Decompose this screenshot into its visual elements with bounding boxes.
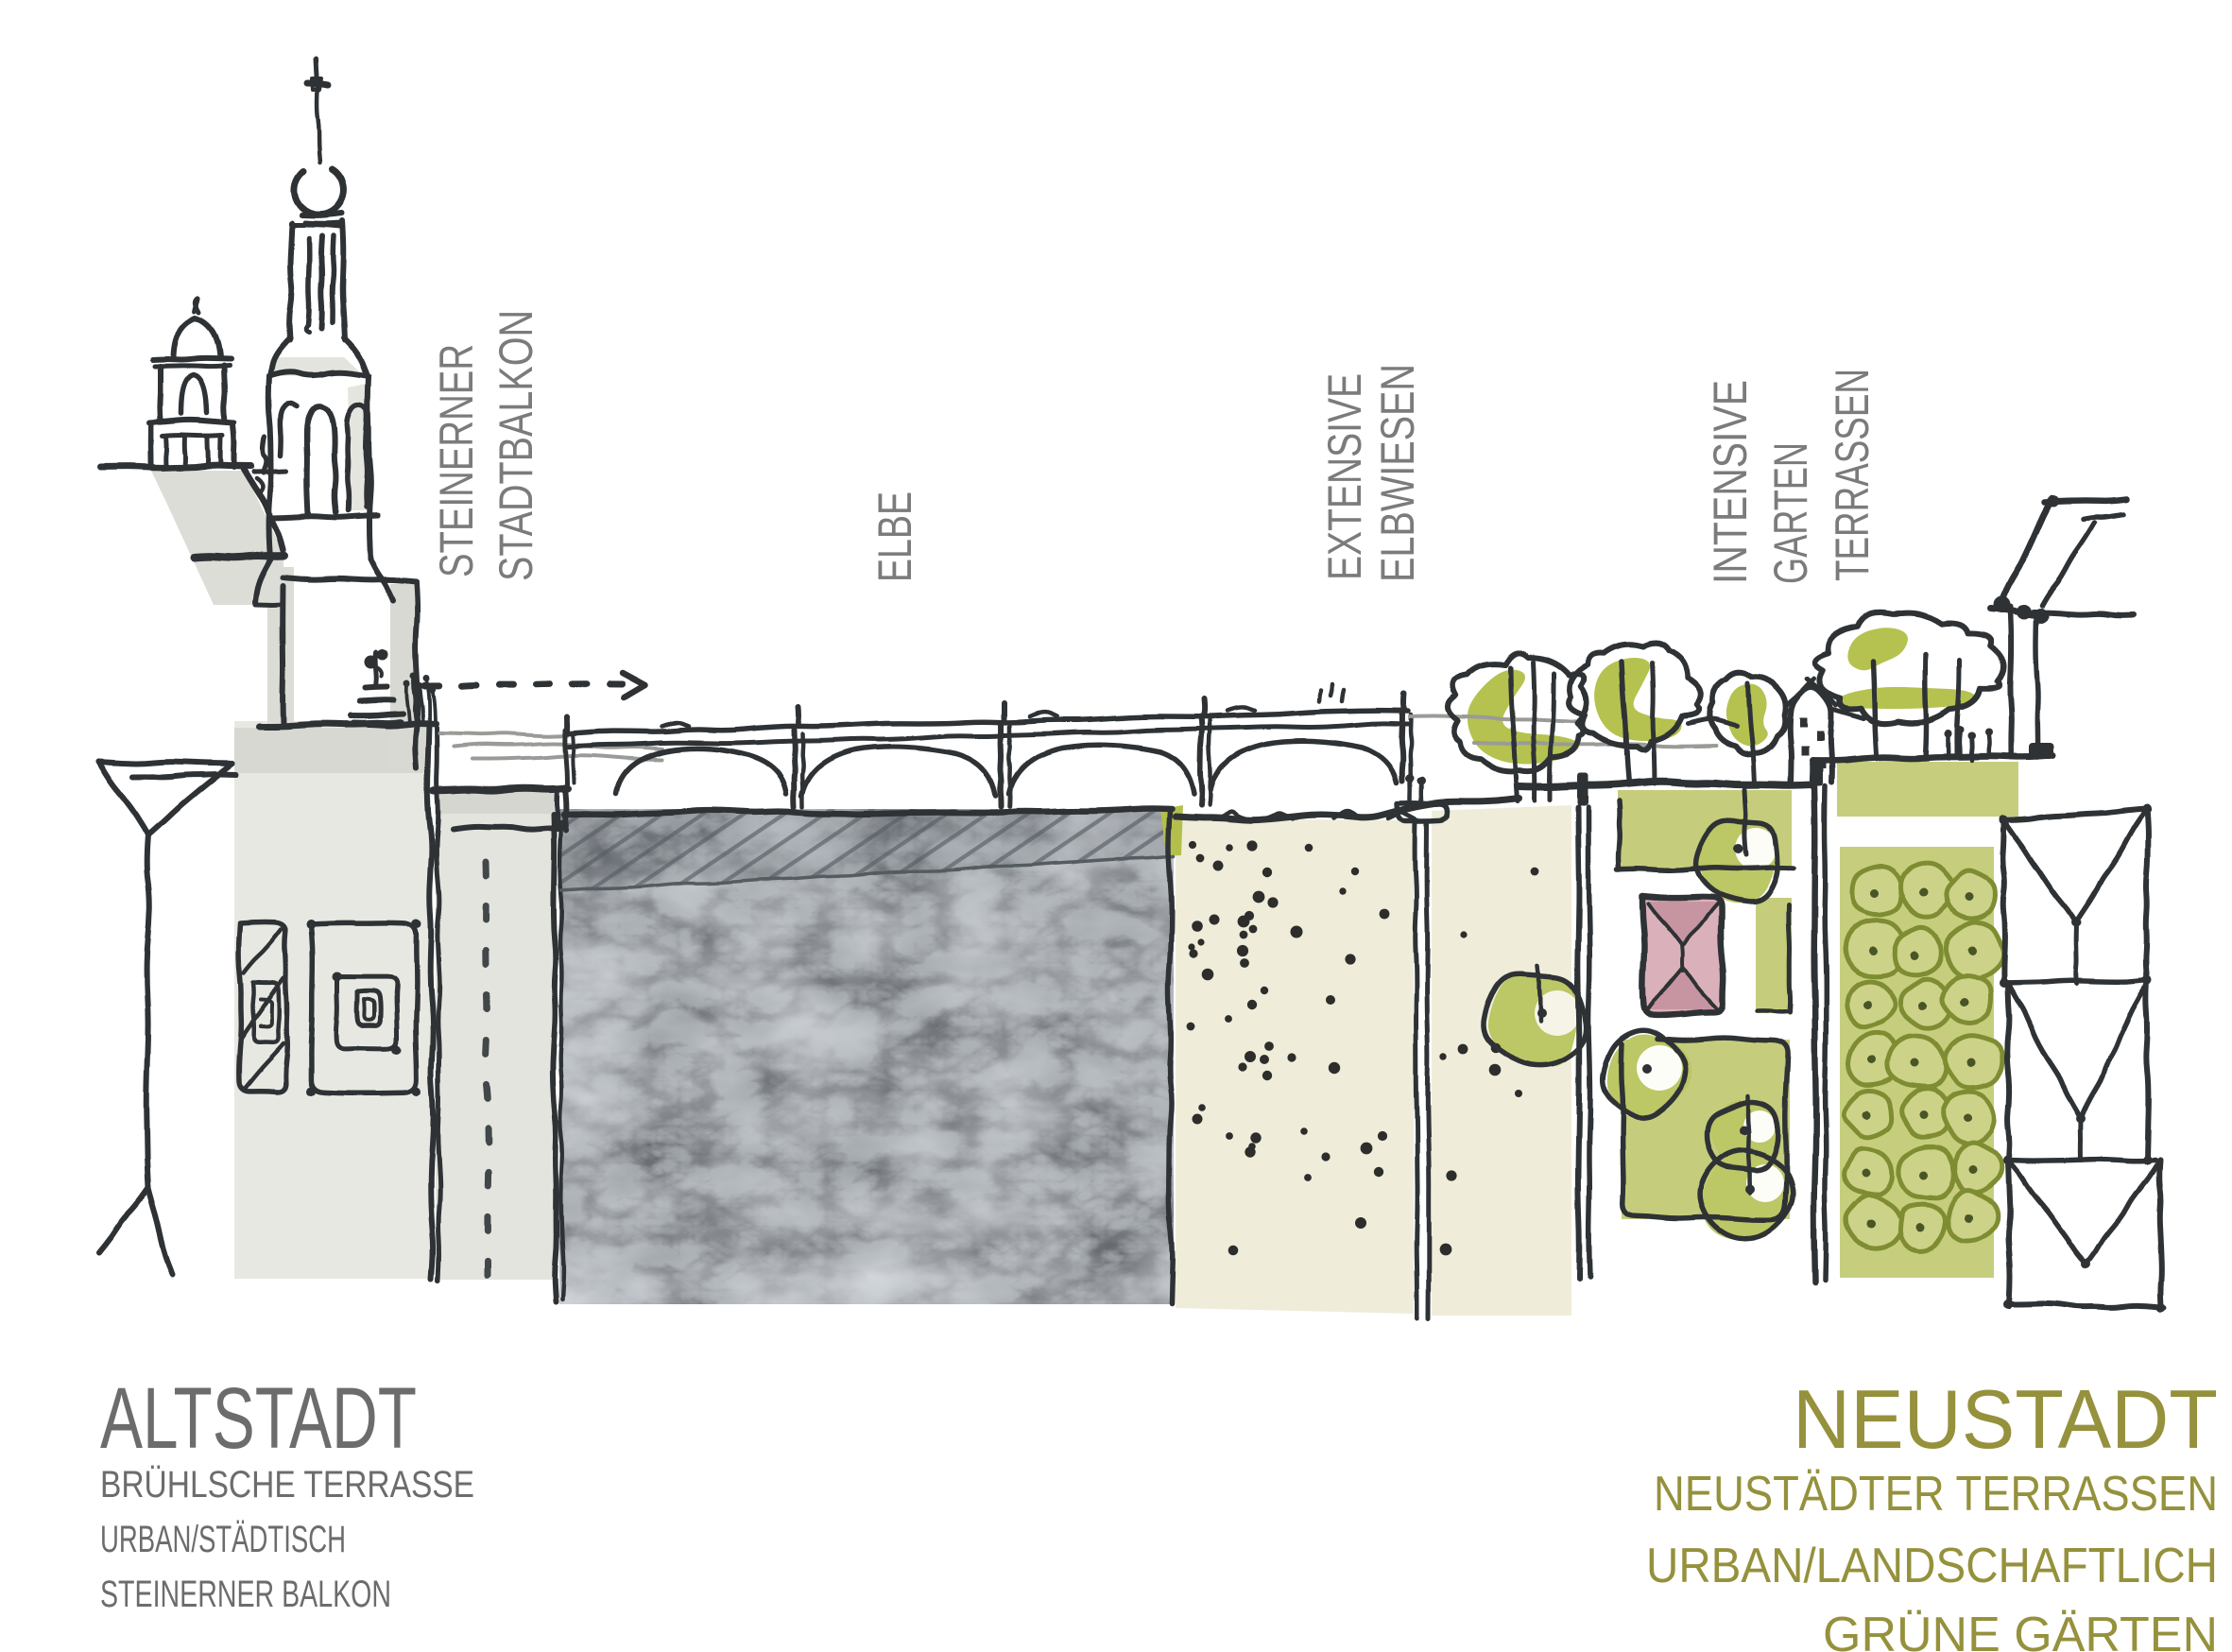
svg-text:NEUSTÄDTER TERRASSEN: NEUSTÄDTER TERRASSEN	[1654, 1467, 2218, 1522]
svg-text:STEINERNER: STEINERNER	[430, 344, 483, 577]
svg-text:ELBE: ELBE	[868, 491, 921, 582]
svg-text:STADTBALKON: STADTBALKON	[489, 310, 542, 581]
svg-text:BRÜHLSCHE TERRASSE: BRÜHLSCHE TERRASSE	[100, 1464, 474, 1506]
svg-text:ALTSTADT: ALTSTADT	[100, 1370, 417, 1467]
svg-text:STEINERNER BALKON: STEINERNER BALKON	[100, 1574, 391, 1615]
svg-text:URBAN/LANDSCHAFTLICH: URBAN/LANDSCHAFTLICH	[1646, 1539, 2218, 1593]
svg-text:NEUSTADT: NEUSTADT	[1793, 1372, 2218, 1466]
svg-text:GARTEN: GARTEN	[1764, 442, 1817, 584]
svg-text:INTENSIVE: INTENSIVE	[1704, 380, 1757, 584]
svg-text:EXTENSIVE: EXTENSIVE	[1318, 373, 1371, 580]
svg-text:GRÜNE GÄRTEN: GRÜNE GÄRTEN	[1823, 1608, 2218, 1652]
svg-text:ELBWIESEN: ELBWIESEN	[1371, 364, 1424, 582]
svg-text:URBAN/STÄDTISCH: URBAN/STÄDTISCH	[100, 1519, 346, 1560]
svg-text:TERRASSEN: TERRASSEN	[1826, 369, 1879, 581]
